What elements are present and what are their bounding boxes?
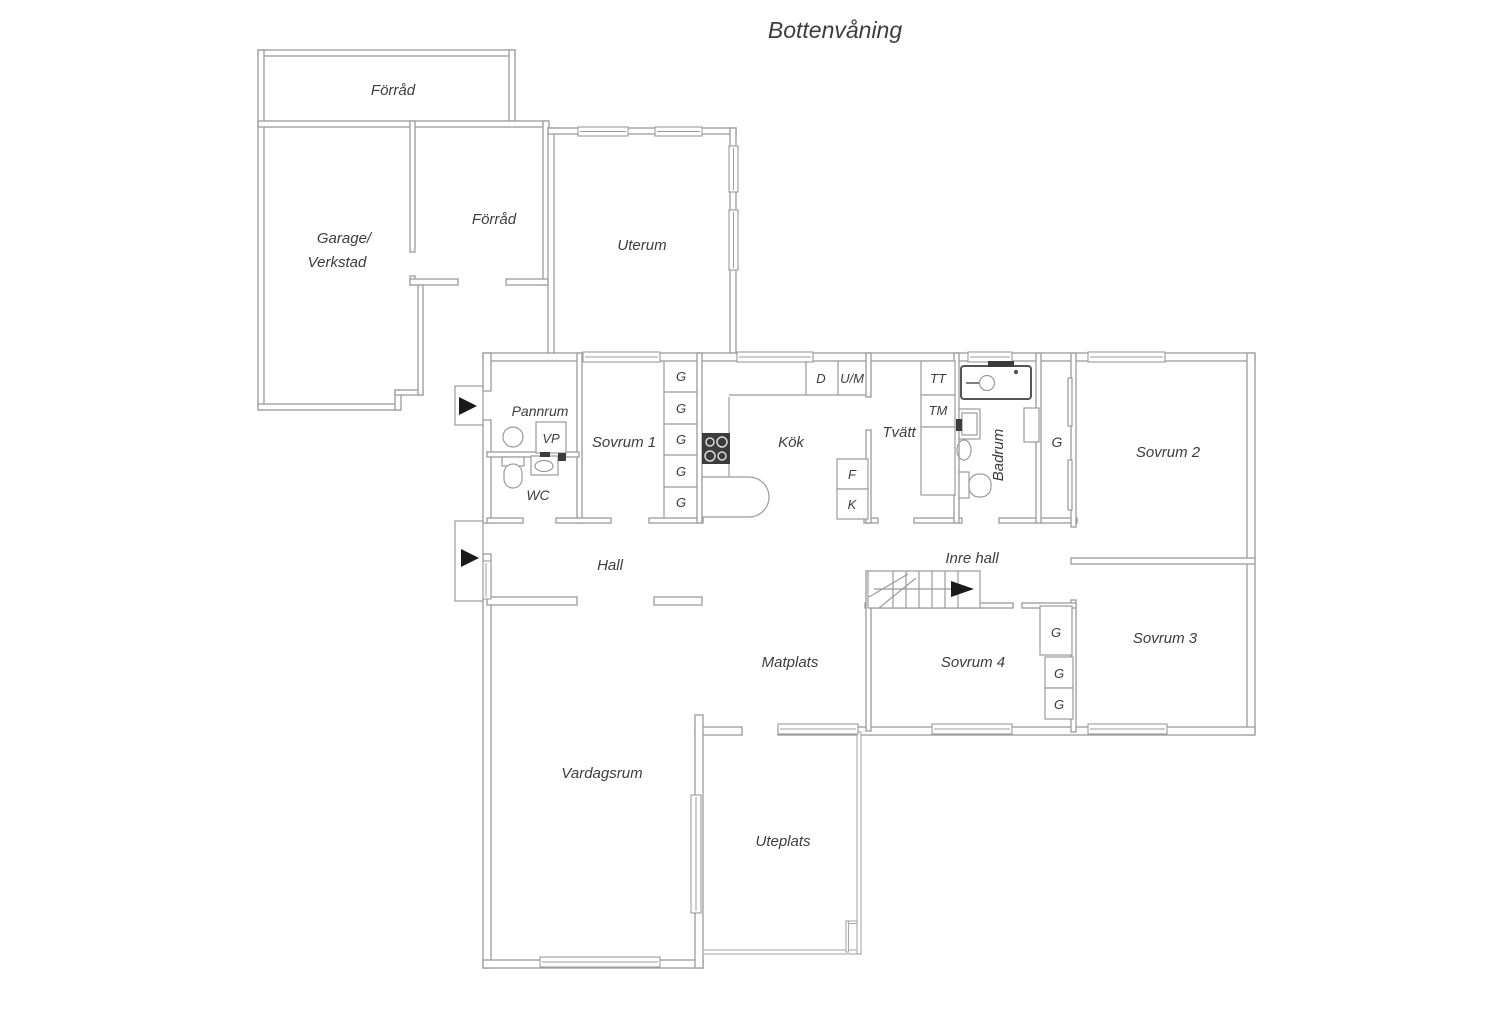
mixer-icon	[1014, 370, 1018, 374]
floorplan-page: Bottenvåning Förråd Garage/ Verkstad För…	[0, 0, 1500, 1022]
room-label-garage-line1: Garage/	[317, 230, 373, 247]
boiler-icon	[503, 427, 523, 447]
appliance-label-um: U/M	[840, 371, 864, 386]
appliance-label-k: K	[848, 497, 858, 512]
stairs-icon	[868, 571, 980, 608]
appliance-label-tt: TT	[930, 371, 947, 386]
closet-label: G	[1051, 625, 1061, 640]
closet-label: G	[676, 432, 686, 447]
page-title: Bottenvåning	[768, 17, 902, 43]
entrance-porches	[455, 386, 483, 601]
room-label-vardagsrum: Vardagsrum	[561, 765, 642, 782]
closet-label: G	[676, 464, 686, 479]
room-label-sovrum3: Sovrum 3	[1133, 630, 1198, 647]
room-label-pannrum: Pannrum	[512, 403, 569, 419]
room-label-sovrum4: Sovrum 4	[941, 654, 1005, 671]
appliance-label-f: F	[848, 467, 857, 482]
room-label-uteplats: Uteplats	[755, 833, 811, 850]
room-label-badrum: Badrum	[990, 429, 1007, 482]
room-label-garage-line2: Verkstad	[308, 254, 367, 271]
house-interior-walls	[487, 353, 1255, 732]
windows	[481, 127, 1167, 967]
room-label-inre-hall: Inre hall	[945, 550, 999, 567]
closet-label: G	[1054, 697, 1064, 712]
faucet-icon	[558, 453, 566, 461]
closet-label: G	[1052, 434, 1063, 450]
room-label-uterum: Uterum	[617, 237, 666, 254]
appliance-label-vp: VP	[542, 431, 560, 446]
closet-label: G	[676, 369, 686, 384]
laundry-cabinet	[921, 427, 955, 495]
closet-label: G	[676, 495, 686, 510]
room-label-tvatt: Tvätt	[882, 424, 916, 441]
room-label-forrad-inner: Förråd	[472, 211, 517, 228]
room-label-forrad-top: Förråd	[371, 82, 416, 99]
toilet-icon	[504, 464, 522, 488]
faucet-icon	[956, 419, 962, 431]
faucet-icon	[540, 452, 550, 457]
toilet-tank-icon	[959, 472, 969, 498]
kitchen-counter	[702, 477, 769, 517]
room-label-wc: WC	[526, 487, 550, 503]
room-label-hall: Hall	[597, 557, 624, 574]
appliance-label-d: D	[816, 371, 825, 386]
room-label-sovrum1: Sovrum 1	[592, 434, 656, 451]
closet-label: G	[676, 401, 686, 416]
closet-label: G	[1054, 666, 1064, 681]
towel-rail-icon	[988, 361, 1014, 367]
room-label-kok: Kök	[778, 434, 805, 451]
appliance-label-tm: TM	[929, 403, 948, 418]
room-label-sovrum2: Sovrum 2	[1136, 444, 1201, 461]
bathroom-cabinet	[1024, 408, 1039, 442]
toilet-bowl-icon	[969, 474, 991, 497]
room-label-matplats: Matplats	[762, 654, 819, 671]
floorplan-drawing: Bottenvåning Förråd Garage/ Verkstad För…	[0, 0, 1500, 1022]
wc-fixtures	[502, 452, 566, 488]
